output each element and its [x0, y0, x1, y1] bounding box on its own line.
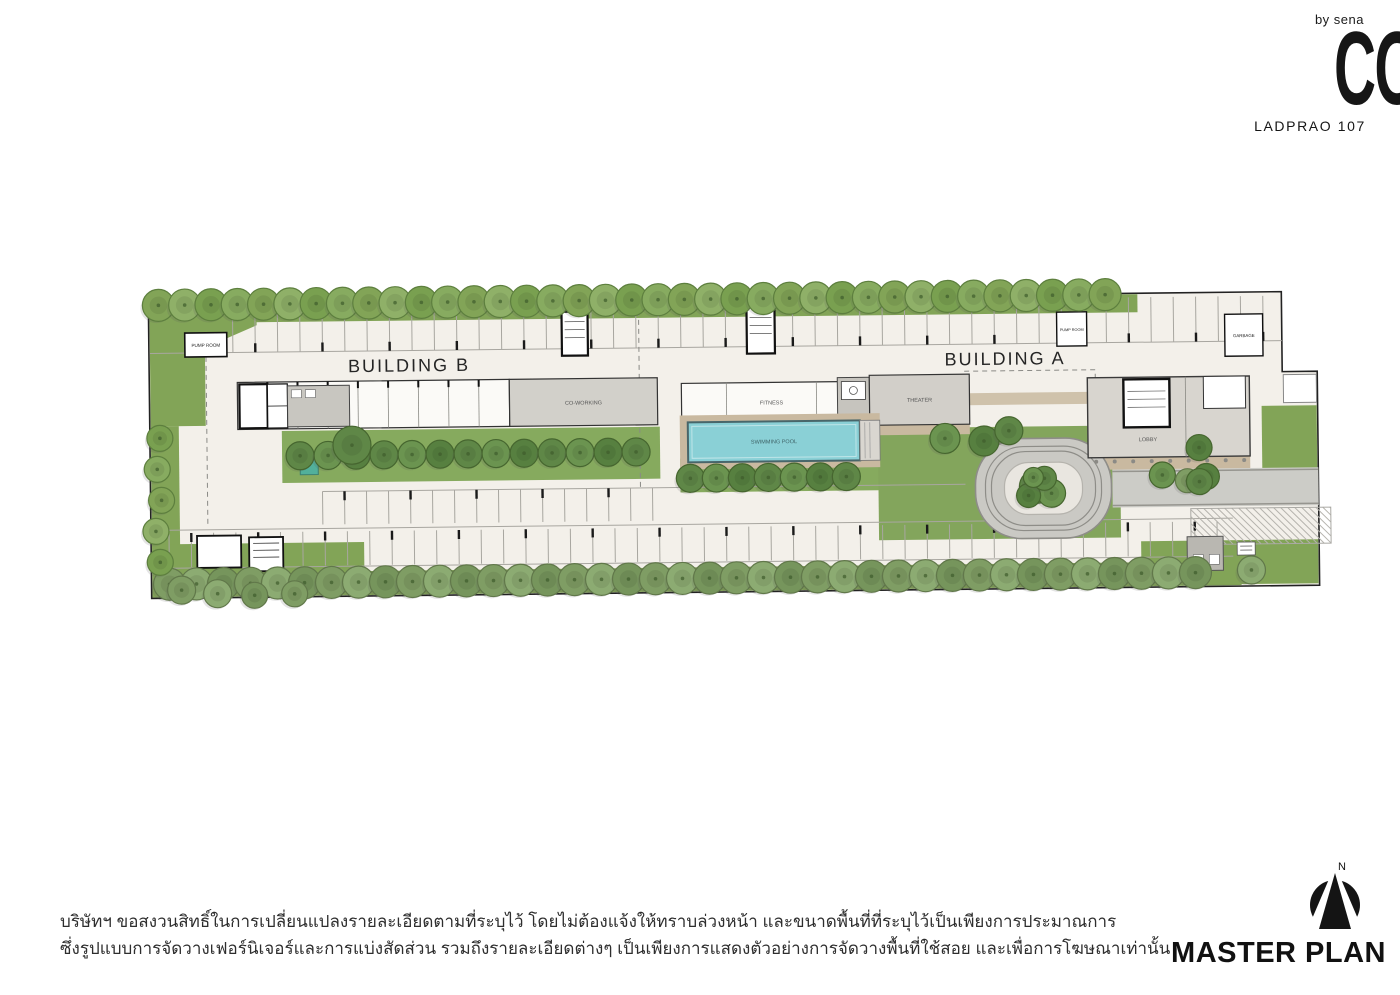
building-b-label: BUILDING B [348, 355, 470, 376]
garbage-room: GARBAGE [1225, 314, 1263, 356]
disclaimer-line-1: บริษัทฯ ขอสงวนสิทธิ์ในการเปลี่ยนแปลงรายล… [60, 908, 1170, 935]
page-background: { "brand": { "byline": "by sena", "logo"… [0, 0, 1400, 990]
pump-room-left: PUMP ROOM [185, 333, 227, 357]
pump-room-right: PUMP ROOM [1057, 312, 1087, 346]
building-a-label: BUILDING A [944, 348, 1065, 369]
north-compass-icon: N [1298, 859, 1372, 933]
site-plan-drawing: PUMP ROOM PUMP ROOM GARBAGE [0, 0, 1400, 990]
theater-label: THEATER [907, 398, 932, 404]
pump-room-label: PUMP ROOM [1060, 328, 1084, 332]
north-label: N [1338, 861, 1346, 873]
lobby-building [1087, 376, 1250, 464]
master-plan-title: MASTER PLAN [1171, 937, 1386, 970]
disclaimer-text: บริษัทฯ ขอสงวนสิทธิ์ในการเปลี่ยนแปลงรายล… [60, 908, 1170, 962]
fitness-label: FITNESS [760, 400, 784, 406]
lobby-label: LOBBY [1139, 437, 1158, 443]
ramp [1283, 374, 1316, 402]
master-plan-block: N MASTER PLAN [1171, 859, 1386, 970]
bike-room [197, 535, 283, 572]
pump-room-label: PUMP ROOM [191, 343, 220, 348]
coworking-label: CO-WORKING [565, 400, 602, 406]
garbage-label: GARBAGE [1233, 333, 1255, 338]
swimming-pool-label: SWIMMING POOL [751, 439, 797, 446]
disclaimer-line-2: ซึ่งรูปแบบการจัดวางเฟอร์นิเจอร์และการแบ่… [60, 935, 1170, 962]
